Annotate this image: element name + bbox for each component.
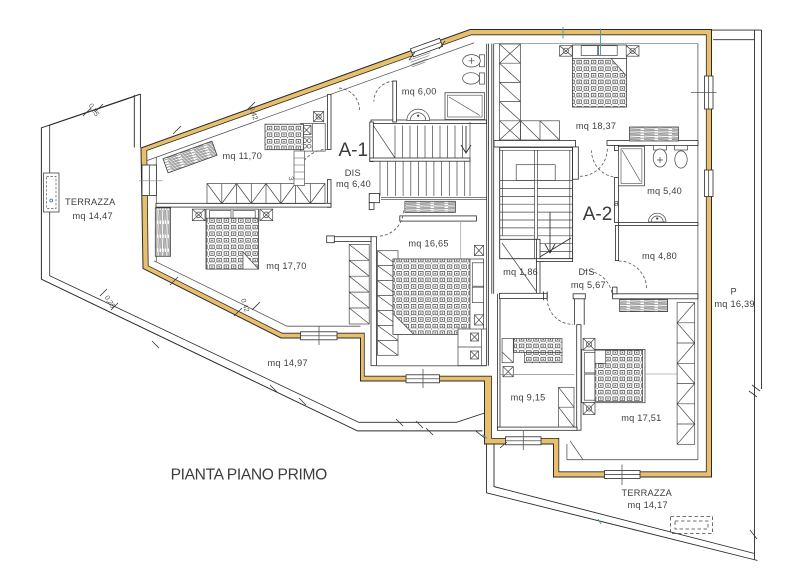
svg-text:mq 6,00: mq 6,00 [402, 87, 437, 97]
svg-text:a: a [614, 198, 620, 208]
svg-text:TERRAZZA: TERRAZZA [622, 488, 673, 498]
svg-text:A-1: A-1 [339, 140, 369, 161]
svg-text:mq 16,65: mq 16,65 [408, 239, 448, 249]
svg-text:mq 18,37: mq 18,37 [576, 121, 616, 131]
svg-text:DIS: DIS [579, 267, 595, 277]
svg-text:mq 14,97: mq 14,97 [268, 358, 308, 368]
svg-text:TERRAZZA: TERRAZZA [65, 197, 116, 207]
svg-text:mq 1,86: mq 1,86 [503, 267, 538, 277]
svg-text:mq 5,40: mq 5,40 [647, 186, 682, 196]
svg-text:mq 17,51: mq 17,51 [621, 413, 661, 423]
svg-text:mq 14,17: mq 14,17 [628, 500, 668, 510]
svg-text:P: P [731, 287, 737, 297]
svg-text:mq 4,80: mq 4,80 [642, 251, 677, 261]
svg-text:mq 14,47: mq 14,47 [73, 211, 113, 221]
svg-text:mq 9,15: mq 9,15 [511, 393, 546, 403]
svg-text:A-2: A-2 [583, 204, 613, 225]
svg-text:mq 11,70: mq 11,70 [223, 151, 263, 161]
svg-text:DIS: DIS [345, 168, 361, 178]
svg-text:mq 6,40: mq 6,40 [336, 179, 371, 189]
svg-text:mq 5,67: mq 5,67 [571, 280, 606, 290]
svg-text:mq 17,70: mq 17,70 [266, 261, 306, 271]
svg-text:PIANTA PIANO PRIMO: PIANTA PIANO PRIMO [171, 467, 328, 484]
svg-text:mq 16,39: mq 16,39 [714, 299, 754, 309]
